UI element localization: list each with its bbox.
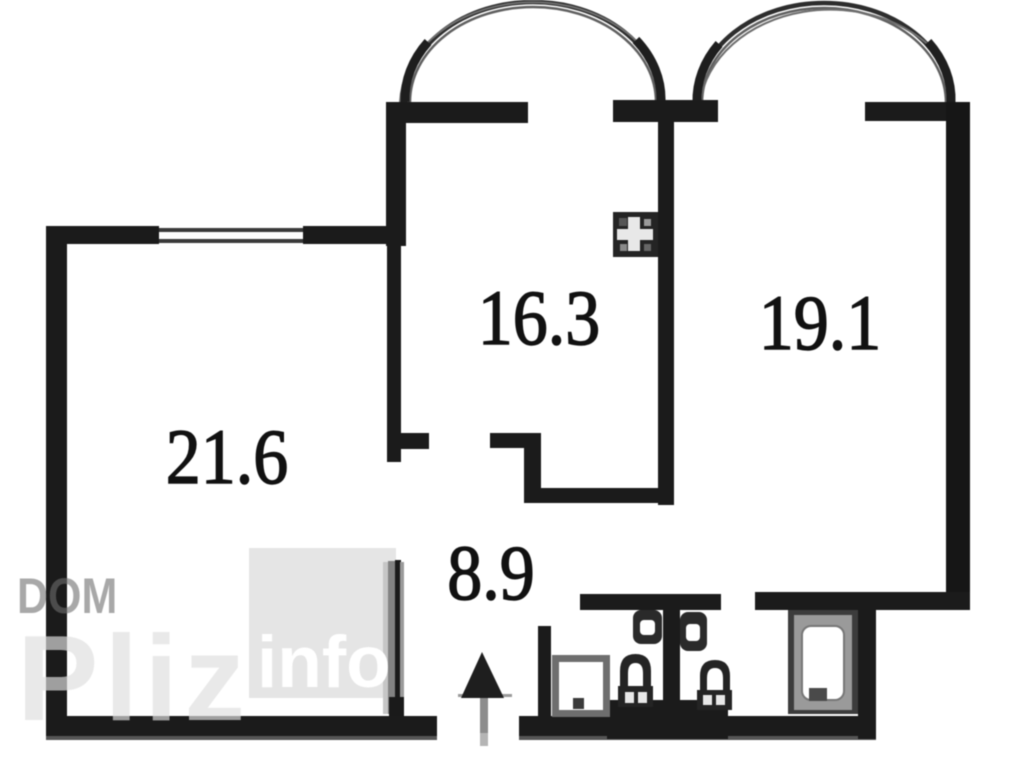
svg-text:16.3: 16.3 [478, 275, 600, 362]
svg-text:21.6: 21.6 [166, 414, 288, 501]
svg-text:8.9: 8.9 [447, 530, 534, 617]
svg-text:Pliz: Pliz [17, 610, 251, 746]
svg-text:19.1: 19.1 [759, 280, 881, 367]
svg-text:info: info [257, 622, 391, 703]
